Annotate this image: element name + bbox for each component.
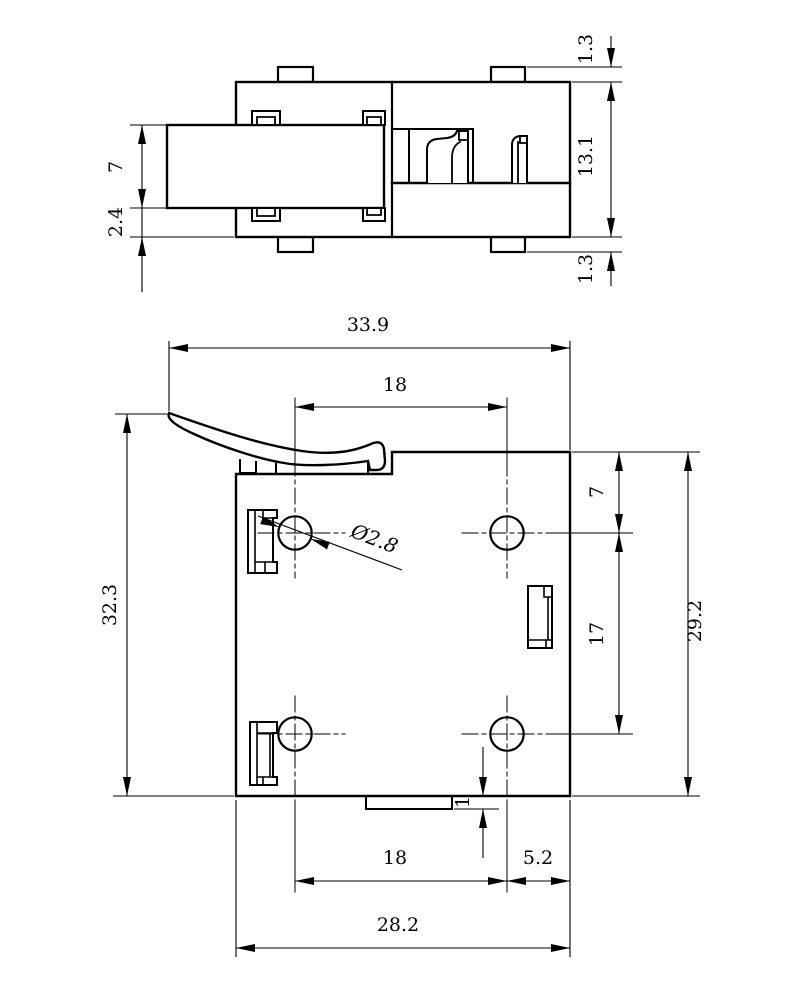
dimension-label: 32.3	[99, 584, 121, 626]
dimension-arrowhead	[488, 403, 507, 411]
dimension-label: 28.2	[377, 914, 419, 936]
dimension-arrowhead	[295, 877, 314, 885]
dimension-arrowhead	[123, 414, 131, 433]
dimension-arrowhead	[479, 809, 487, 828]
dimension-label: 17	[586, 622, 608, 646]
dimension-label: 29.2	[684, 600, 706, 642]
bottom-view	[169, 398, 570, 892]
side-lever-outline	[167, 125, 384, 208]
dimension-label: 18	[383, 374, 407, 396]
dimension-arrowhead	[615, 533, 623, 552]
dimension-arrowhead	[123, 777, 131, 796]
top-view	[167, 67, 570, 252]
dimension-label: 33.9	[347, 314, 389, 336]
dimension-arrowhead	[236, 944, 255, 952]
dimension-label: 18	[383, 847, 407, 869]
dimension-arrowhead	[138, 189, 146, 208]
dimension-arrowhead	[684, 452, 692, 471]
side-tab	[491, 67, 525, 82]
dimension-label: 7	[105, 161, 127, 173]
dimension-arrowhead	[607, 252, 615, 271]
dimension-label: 7	[586, 486, 608, 498]
dimension-arrowhead	[684, 777, 692, 796]
dimension-arrowhead	[169, 344, 188, 352]
dimension-arrowhead	[615, 452, 623, 471]
dimension-arrowhead	[615, 514, 623, 533]
dimension-arrowhead	[551, 877, 570, 885]
side-tab	[491, 237, 525, 252]
dimension-arrowhead	[488, 877, 507, 885]
dimension-arrowhead	[138, 125, 146, 144]
technical-drawing-sheet: 72.41.313.11.333.91832.3Ø2.871729.21185.…	[0, 0, 800, 1000]
dimension-label: 1.3	[575, 34, 597, 64]
side-contact-hook	[427, 131, 468, 183]
dimension-arrowhead	[607, 82, 615, 101]
dimension-label: 2.4	[105, 207, 127, 237]
plan-bottom-tab	[366, 796, 452, 809]
side-tab	[278, 237, 313, 252]
dimension-label: 5.2	[523, 847, 553, 869]
dimension-arrowhead	[615, 715, 623, 734]
technical-drawing-canvas: 72.41.313.11.333.91832.3Ø2.871729.21185.…	[0, 0, 800, 1000]
dimension-arrowhead	[551, 944, 570, 952]
dimension-arrowhead	[295, 403, 314, 411]
dimension-arrowhead	[607, 218, 615, 237]
dimension-label: 13.1	[575, 135, 597, 177]
side-tab	[278, 67, 313, 82]
dimension-label: 1.3	[575, 254, 597, 284]
dimension-arrowhead	[607, 48, 615, 67]
dimension-arrowhead	[551, 344, 570, 352]
dimension-arrowhead	[138, 237, 146, 256]
plan-lever-outline	[169, 413, 385, 470]
dimension-label: 1	[452, 796, 474, 808]
dimension-arrowhead	[507, 877, 526, 885]
